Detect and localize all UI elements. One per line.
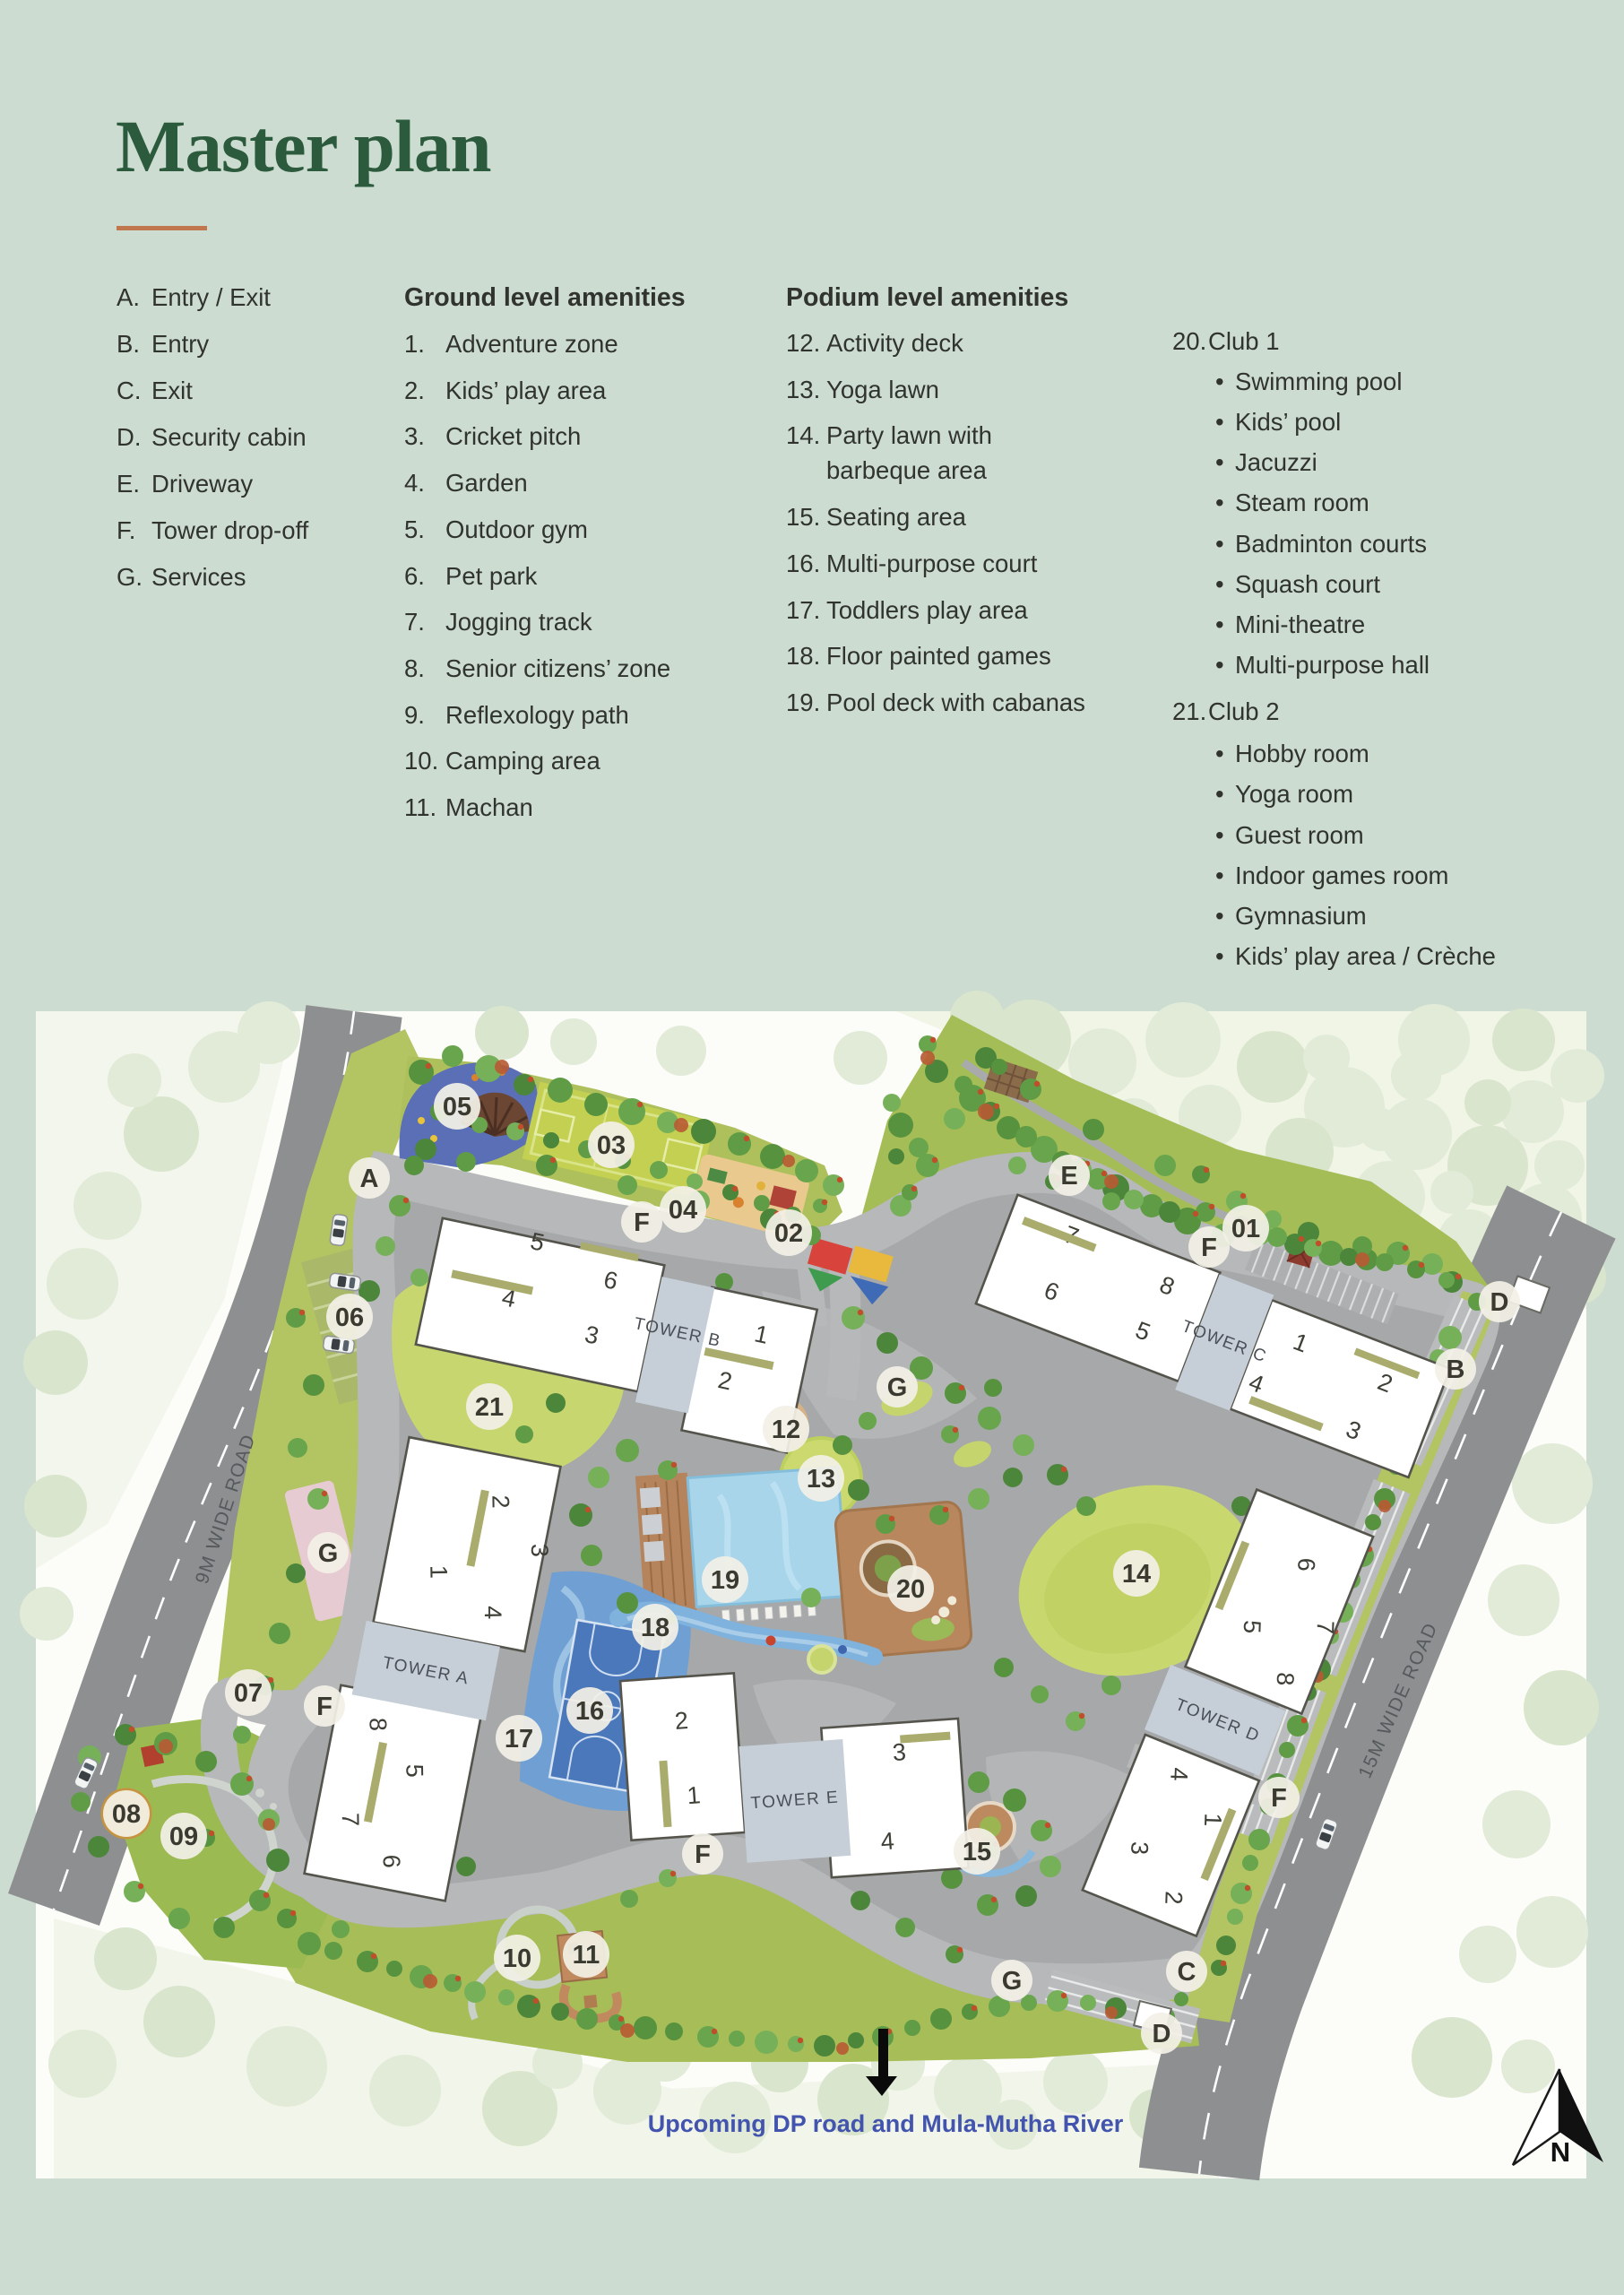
svg-text:08: 08 [112,1800,141,1829]
svg-text:Entry: Entry [151,330,209,358]
svg-text:4: 4 [1165,1767,1193,1781]
svg-text:A: A [360,1165,379,1193]
svg-text:A.: A. [117,283,140,311]
svg-text:•: • [1215,740,1224,767]
svg-text:Tower drop-off: Tower drop-off [151,516,309,544]
svg-text:4: 4 [479,1606,506,1620]
svg-text:Activity deck: Activity deck [826,329,963,357]
svg-text:4: 4 [880,1827,895,1855]
svg-text:2: 2 [1160,1891,1188,1905]
svg-text:Ground level amenities: Ground level amenities [404,283,686,312]
svg-text:17: 17 [505,1725,533,1754]
svg-text:Jacuzzi: Jacuzzi [1235,448,1317,476]
svg-text:Jogging track: Jogging track [445,608,592,636]
svg-text:F: F [634,1208,650,1237]
svg-text:7: 7 [1311,1620,1339,1634]
svg-text:D.: D. [117,423,142,451]
svg-text:Gymnasium: Gymnasium [1235,902,1367,930]
svg-text:2: 2 [487,1494,514,1509]
svg-text:12.: 12. [786,329,820,357]
svg-text:G: G [1002,1967,1023,1996]
svg-text:Hobby room: Hobby room [1235,740,1369,767]
svg-text:10: 10 [503,1944,531,1973]
svg-text:3: 3 [526,1544,553,1558]
svg-text:Pet park: Pet park [445,562,538,590]
svg-text:Kids’ pool: Kids’ pool [1235,408,1341,436]
svg-text:F: F [695,1840,711,1869]
svg-text:5: 5 [1239,1620,1266,1634]
svg-text:Yoga room: Yoga room [1235,780,1353,808]
svg-text:C: C [1178,1958,1196,1987]
svg-text:E: E [1060,1162,1077,1191]
svg-text:Senior citizens’ zone: Senior citizens’ zone [445,654,670,682]
svg-text:Squash court: Squash court [1235,570,1380,598]
svg-text:C.: C. [117,377,142,404]
svg-text:•: • [1215,368,1224,395]
svg-text:F: F [1201,1234,1217,1262]
svg-text:Yoga lawn: Yoga lawn [826,376,939,403]
svg-text:Kids’ play area: Kids’ play area [445,377,607,404]
svg-text:11: 11 [573,1941,600,1970]
svg-text:14.: 14. [786,421,820,449]
svg-text:6: 6 [378,1854,405,1868]
svg-text:07: 07 [234,1679,263,1708]
svg-text:N: N [1551,2136,1570,2168]
svg-text:•: • [1215,570,1224,598]
svg-text:01: 01 [1231,1215,1260,1243]
svg-text:19: 19 [711,1566,739,1595]
svg-text:Party lawn with: Party lawn with [826,421,992,449]
svg-text:Security cabin: Security cabin [151,423,307,451]
svg-text:Entry / Exit: Entry / Exit [151,283,271,311]
svg-text:Steam room: Steam room [1235,489,1369,516]
svg-text:•: • [1215,942,1224,970]
svg-text:17.: 17. [786,596,820,624]
svg-text:02: 02 [774,1219,803,1248]
svg-text:15.: 15. [786,503,820,531]
svg-text:Adventure zone: Adventure zone [445,330,618,358]
svg-text:05: 05 [443,1093,471,1122]
svg-text:•: • [1215,821,1224,849]
svg-text:16.: 16. [786,550,820,577]
svg-text:F.: F. [117,516,135,544]
svg-text:Machan: Machan [445,793,533,821]
svg-text:G: G [887,1373,908,1402]
svg-text:Toddlers play area: Toddlers play area [826,596,1028,624]
svg-text:Podium level amenities: Podium level amenities [786,283,1068,312]
svg-text:G.: G. [117,563,143,591]
svg-text:6.: 6. [404,562,425,590]
svg-text:•: • [1215,489,1224,516]
svg-text:Exit: Exit [151,377,193,404]
svg-text:8: 8 [365,1718,392,1732]
svg-text:Swimming pool: Swimming pool [1235,368,1402,395]
svg-text:Multi-purpose hall: Multi-purpose hall [1235,651,1430,679]
svg-text:21.: 21. [1172,697,1206,725]
svg-text:Garden: Garden [445,469,528,497]
svg-text:•: • [1215,530,1224,558]
svg-text:1: 1 [425,1565,452,1580]
svg-text:F: F [316,1693,333,1721]
svg-text:Reflexology path: Reflexology path [445,701,629,729]
svg-text:Seating area: Seating area [826,503,967,531]
svg-text:09: 09 [169,1823,198,1851]
svg-text:1: 1 [687,1781,702,1809]
svg-text:04: 04 [669,1196,697,1225]
svg-text:03: 03 [597,1131,626,1160]
svg-text:E.: E. [117,470,140,498]
svg-text:Club 2: Club 2 [1208,697,1280,725]
svg-text:G: G [318,1539,339,1568]
svg-text:barbeque area: barbeque area [826,456,988,484]
svg-text:•: • [1215,408,1224,436]
svg-text:Upcoming DP road and Mula-Muth: Upcoming DP road and Mula-Mutha River [648,2110,1124,2137]
svg-text:Driveway: Driveway [151,470,253,498]
svg-text:18: 18 [641,1614,669,1642]
svg-text:20.: 20. [1172,327,1206,355]
svg-text:06: 06 [335,1303,364,1332]
svg-text:B.: B. [117,330,140,358]
svg-text:2.: 2. [404,377,425,404]
svg-text:Floor painted games: Floor painted games [826,642,1051,670]
svg-text:Indoor games room: Indoor games room [1235,862,1448,889]
svg-text:14: 14 [1122,1560,1151,1589]
svg-text:8.: 8. [404,654,425,682]
svg-text:B: B [1447,1355,1465,1384]
svg-text:15: 15 [963,1838,991,1866]
svg-text:12: 12 [772,1416,800,1444]
svg-text:•: • [1215,448,1224,476]
svg-text:F: F [1271,1784,1287,1813]
svg-text:3: 3 [1126,1841,1153,1856]
svg-text:18.: 18. [786,642,820,670]
svg-text:13: 13 [807,1465,835,1494]
svg-text:7: 7 [337,1813,364,1827]
svg-text:•: • [1215,862,1224,889]
svg-text:6: 6 [1292,1557,1320,1572]
svg-text:Cricket pitch: Cricket pitch [445,422,581,450]
svg-text:3.: 3. [404,422,425,450]
svg-text:Camping area: Camping area [445,747,600,775]
svg-text:9.: 9. [404,701,425,729]
svg-text:Guest room: Guest room [1235,821,1364,849]
svg-text:Badminton courts: Badminton courts [1235,530,1427,558]
svg-text:8: 8 [1272,1672,1300,1686]
svg-text:13.: 13. [786,376,820,403]
svg-text:5.: 5. [404,515,425,543]
svg-text:Kids’ play area / Crèche: Kids’ play area / Crèche [1235,942,1496,970]
svg-text:•: • [1215,902,1224,930]
svg-text:D: D [1490,1288,1509,1317]
svg-text:Club 1: Club 1 [1208,327,1280,355]
svg-text:Pool deck with cabanas: Pool deck with cabanas [826,688,1085,716]
svg-text:10.: 10. [404,747,438,775]
svg-text:19.: 19. [786,688,820,716]
svg-text:4.: 4. [404,469,425,497]
svg-text:2: 2 [674,1707,689,1735]
svg-text:Multi-purpose court: Multi-purpose court [826,550,1038,577]
svg-text:Mini-theatre: Mini-theatre [1235,611,1365,638]
svg-text:1.: 1. [404,330,425,358]
svg-text:Master plan: Master plan [116,105,491,187]
svg-text:•: • [1215,611,1224,638]
svg-text:21: 21 [475,1393,504,1422]
svg-text:16: 16 [575,1697,604,1726]
svg-text:5: 5 [401,1764,428,1779]
svg-text:11.: 11. [404,793,436,821]
svg-text:7.: 7. [404,608,425,636]
svg-text:D: D [1153,2020,1171,2048]
svg-text:Outdoor gym: Outdoor gym [445,515,588,543]
svg-text:20: 20 [896,1575,925,1604]
svg-text:Services: Services [151,563,246,591]
svg-text:•: • [1215,651,1224,679]
svg-text:•: • [1215,780,1224,808]
